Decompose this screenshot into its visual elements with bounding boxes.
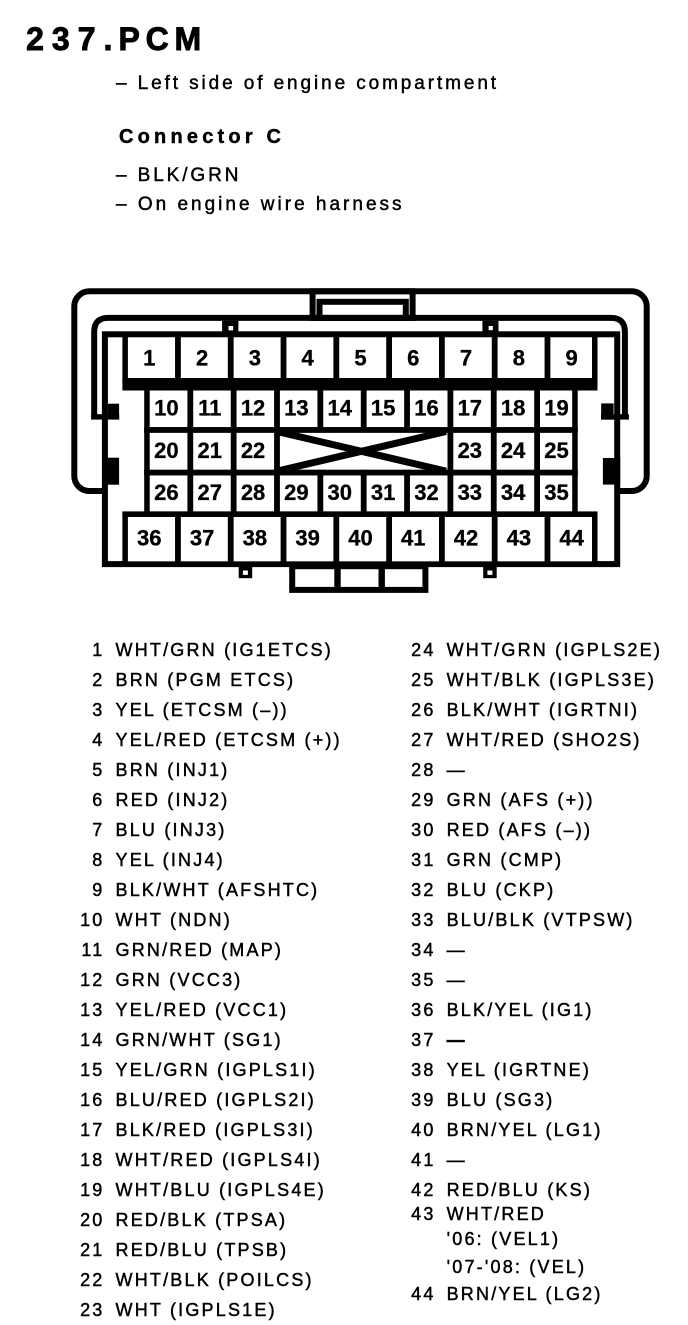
- svg-text:43: 43: [507, 526, 531, 551]
- svg-text:31: 31: [371, 480, 395, 505]
- svg-text:2: 2: [196, 346, 208, 371]
- svg-text:9: 9: [565, 346, 577, 371]
- svg-text:6: 6: [407, 346, 419, 371]
- svg-text:32: 32: [414, 480, 438, 505]
- svg-text:18: 18: [501, 396, 525, 421]
- svg-text:3: 3: [249, 346, 261, 371]
- svg-text:29: 29: [284, 480, 308, 505]
- svg-text:40: 40: [348, 526, 372, 551]
- svg-text:8: 8: [513, 346, 525, 371]
- svg-text:14: 14: [328, 396, 353, 421]
- svg-text:23: 23: [458, 438, 482, 463]
- svg-text:42: 42: [454, 526, 478, 551]
- svg-text:10: 10: [154, 396, 178, 421]
- svg-text:41: 41: [401, 526, 425, 551]
- svg-text:1: 1: [143, 346, 155, 371]
- svg-text:24: 24: [501, 438, 526, 463]
- svg-text:35: 35: [544, 480, 568, 505]
- svg-text:16: 16: [414, 396, 438, 421]
- svg-text:13: 13: [284, 396, 308, 421]
- svg-text:7: 7: [460, 346, 472, 371]
- svg-text:20: 20: [154, 438, 178, 463]
- svg-text:25: 25: [544, 438, 568, 463]
- svg-text:17: 17: [458, 396, 482, 421]
- svg-text:27: 27: [197, 480, 221, 505]
- svg-text:30: 30: [328, 480, 352, 505]
- svg-text:39: 39: [295, 526, 319, 551]
- svg-text:12: 12: [241, 396, 265, 421]
- svg-text:21: 21: [197, 438, 221, 463]
- svg-text:5: 5: [354, 346, 366, 371]
- svg-text:22: 22: [241, 438, 265, 463]
- svg-text:34: 34: [501, 480, 526, 505]
- svg-text:44: 44: [559, 526, 584, 551]
- svg-text:28: 28: [241, 480, 265, 505]
- svg-text:33: 33: [458, 480, 482, 505]
- svg-text:11: 11: [198, 396, 221, 421]
- svg-text:36: 36: [137, 526, 161, 551]
- svg-text:26: 26: [154, 480, 178, 505]
- svg-text:19: 19: [544, 396, 568, 421]
- svg-text:38: 38: [243, 526, 267, 551]
- svg-text:15: 15: [371, 396, 395, 421]
- svg-text:4: 4: [302, 346, 315, 371]
- svg-text:37: 37: [190, 526, 214, 551]
